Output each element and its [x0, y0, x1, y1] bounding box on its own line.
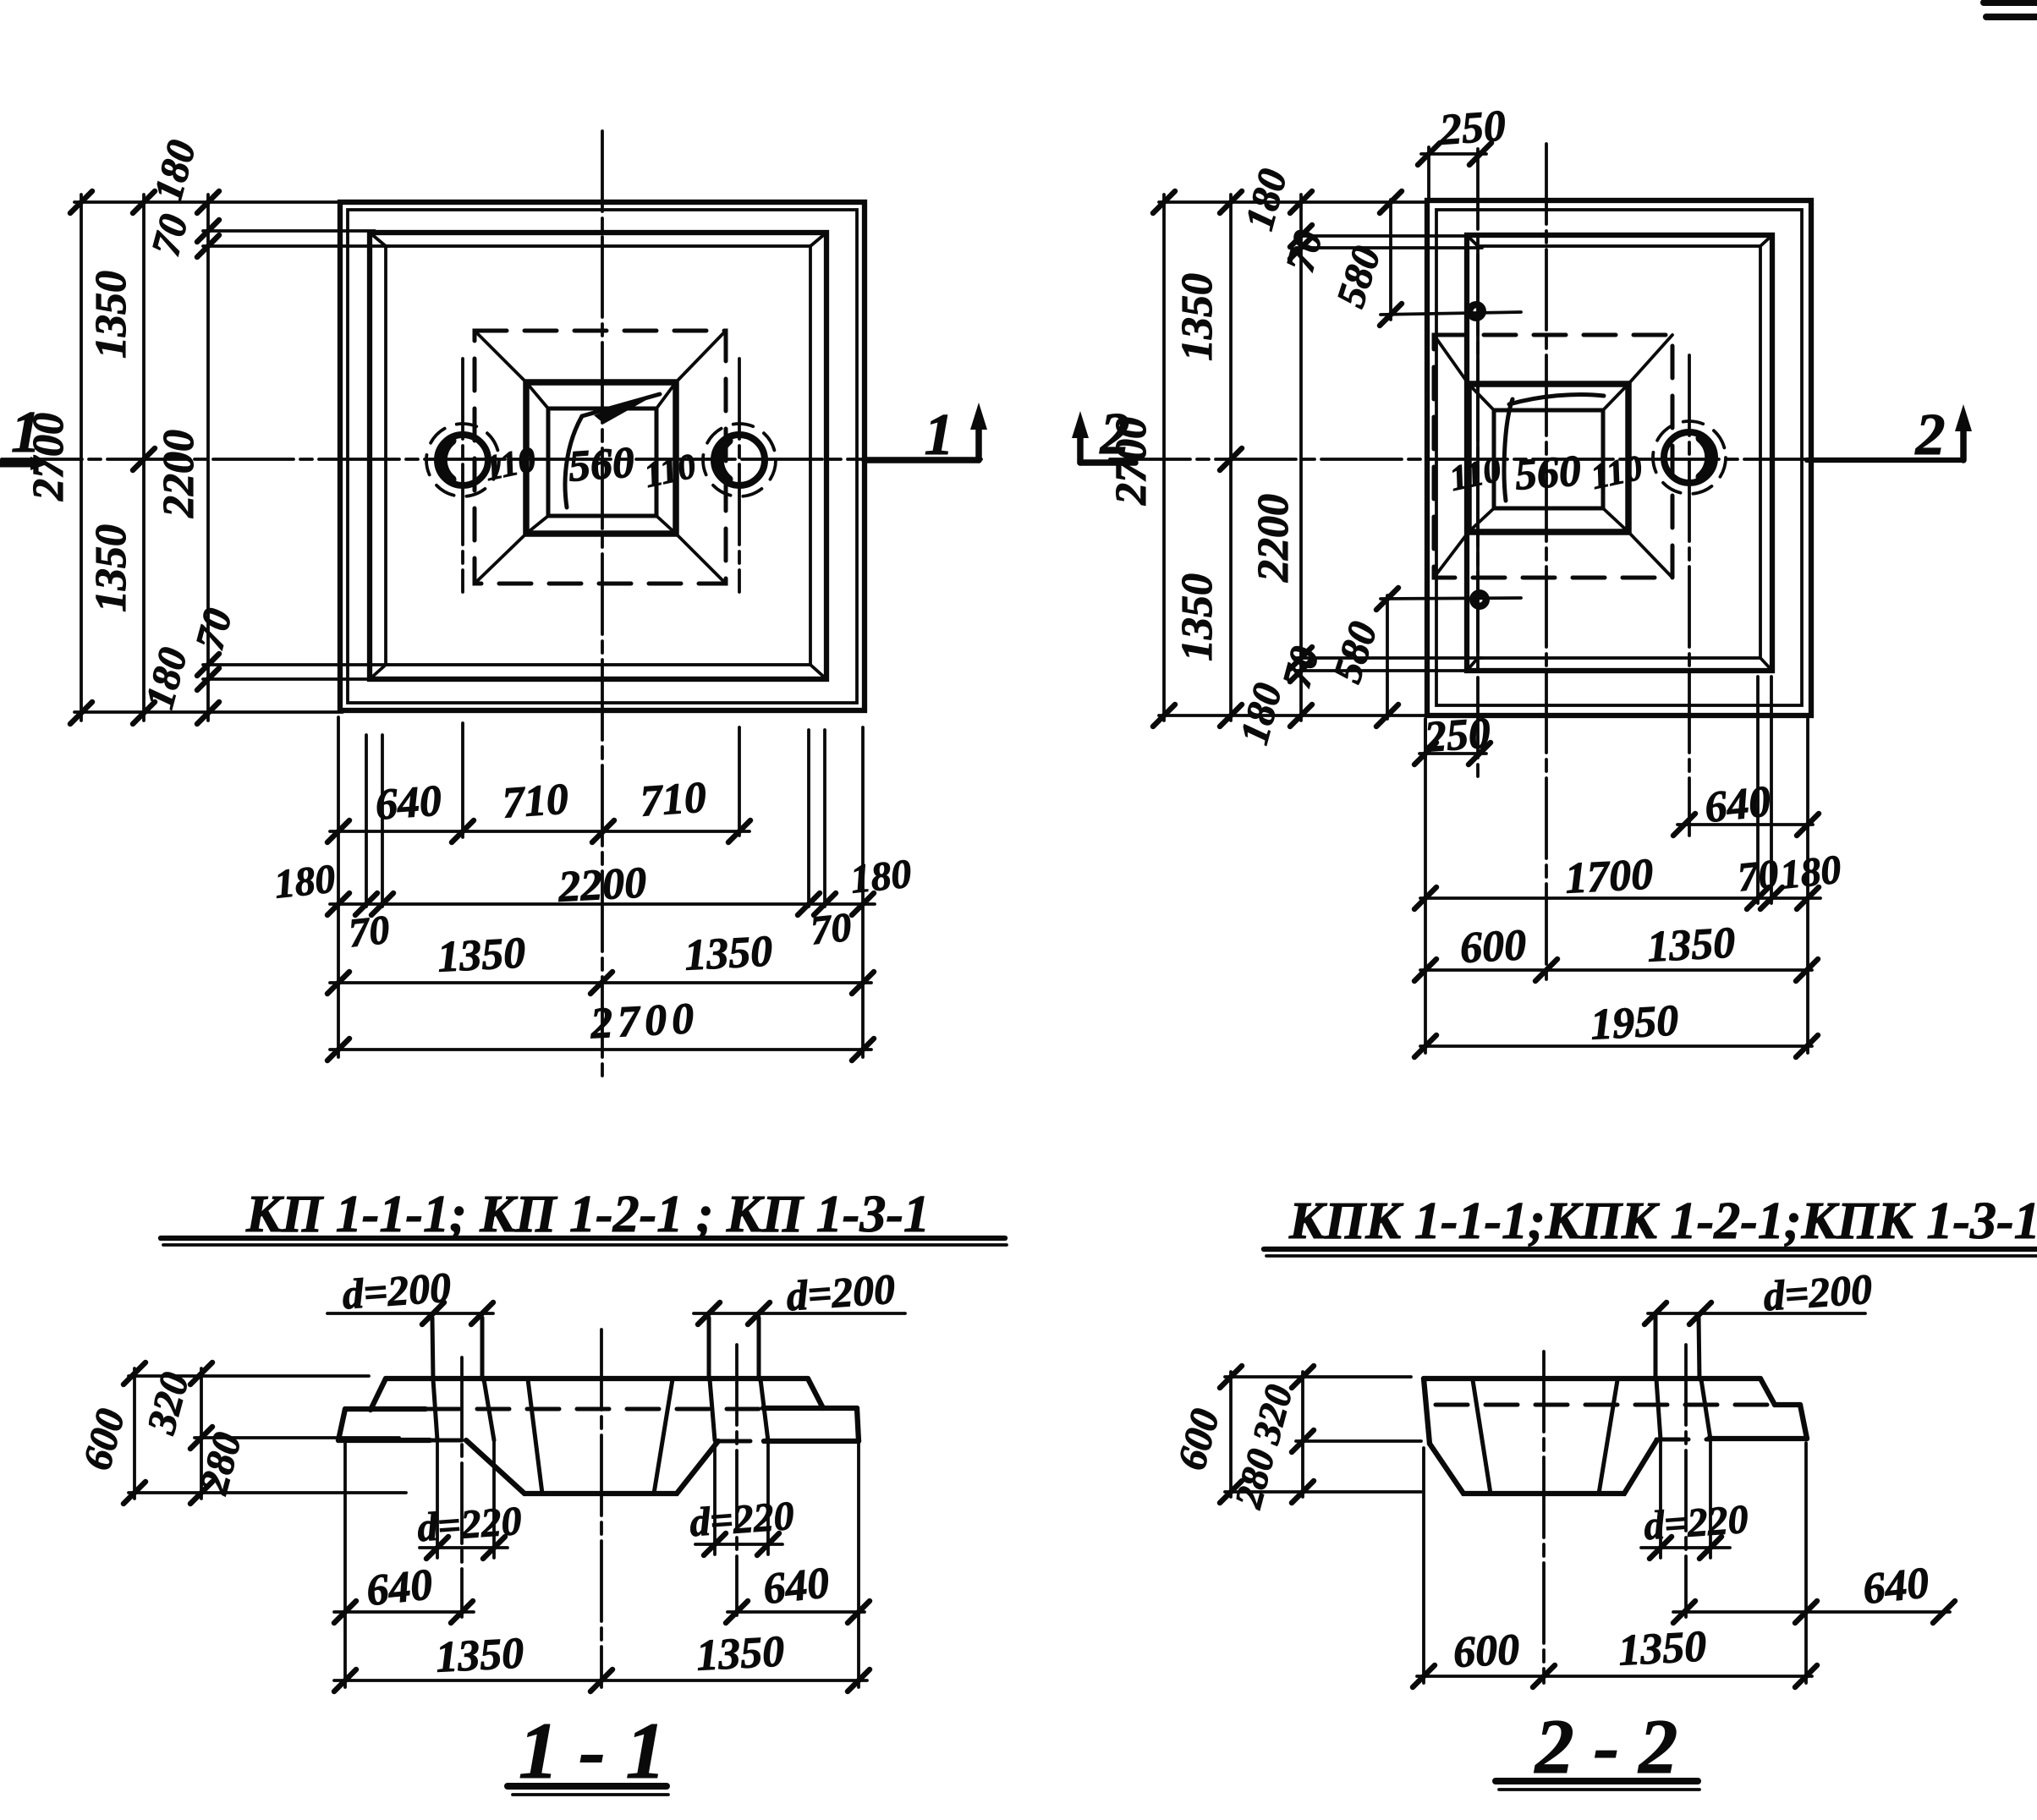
svg-text:580: 580 — [1325, 617, 1386, 688]
svg-text:640: 640 — [1703, 777, 1774, 832]
svg-text:1: 1 — [11, 400, 41, 465]
svg-text:640: 640 — [761, 1559, 832, 1614]
svg-text:1350: 1350 — [695, 1627, 786, 1680]
svg-text:180: 180 — [1237, 164, 1296, 234]
svg-text:2200: 2200 — [1249, 494, 1298, 583]
svg-text:1350: 1350 — [87, 271, 135, 359]
svg-text:600: 600 — [1459, 921, 1528, 973]
svg-text:110: 110 — [641, 447, 700, 496]
svg-text:1: 1 — [925, 403, 954, 468]
svg-text:320: 320 — [1244, 1380, 1300, 1449]
svg-text:1350: 1350 — [1646, 918, 1737, 971]
svg-text:70: 70 — [809, 905, 854, 954]
svg-text:2200: 2200 — [557, 858, 648, 911]
svg-text:1950: 1950 — [1590, 996, 1680, 1049]
svg-text:600: 600 — [1452, 1625, 1521, 1677]
svg-text:710: 710 — [639, 773, 708, 825]
svg-text:КПК 1-1-1;КПК 1-2-1;КПК 1-3-1: КПК 1-1-1;КПК 1-2-1;КПК 1-3-1 — [1288, 1192, 2037, 1250]
svg-text:110: 110 — [1588, 448, 1646, 497]
svg-text:710: 710 — [501, 775, 570, 827]
svg-text:2 - 2: 2 - 2 — [1534, 1703, 1678, 1790]
svg-text:70: 70 — [1274, 642, 1328, 693]
svg-text:180: 180 — [137, 643, 196, 713]
svg-text:КП 1-1-1; КП 1-2-1 ; КП 1-3-1: КП 1-1-1; КП 1-2-1 ; КП 1-3-1 — [245, 1186, 930, 1243]
svg-text:640: 640 — [374, 776, 443, 829]
svg-text:1700: 1700 — [1564, 850, 1655, 902]
svg-text:1350: 1350 — [1173, 273, 1222, 361]
svg-text:d=220: d=220 — [416, 1499, 524, 1550]
svg-text:70: 70 — [143, 210, 197, 260]
svg-text:1350: 1350 — [436, 929, 527, 981]
svg-text:1350: 1350 — [1617, 1622, 1708, 1675]
svg-text:600: 600 — [74, 1404, 134, 1474]
svg-text:d=200: d=200 — [1762, 1265, 1874, 1320]
svg-text:2: 2 — [1915, 403, 1946, 468]
svg-text:70: 70 — [1277, 226, 1331, 277]
svg-text:600: 600 — [1169, 1404, 1228, 1474]
svg-text:1350: 1350 — [87, 524, 135, 612]
svg-text:320: 320 — [139, 1368, 198, 1439]
svg-text:180: 180 — [1778, 847, 1843, 897]
svg-text:250: 250 — [1437, 101, 1507, 154]
svg-text:180: 180 — [1232, 678, 1291, 748]
svg-text:70: 70 — [347, 907, 392, 957]
svg-text:250: 250 — [1422, 709, 1492, 761]
svg-text:d=220: d=220 — [689, 1494, 796, 1545]
svg-text:2: 2 — [1100, 402, 1130, 467]
svg-text:d=200: d=200 — [785, 1265, 897, 1320]
svg-text:1350: 1350 — [1173, 573, 1222, 661]
svg-text:640: 640 — [1861, 1559, 1932, 1614]
svg-text:640: 640 — [365, 1560, 436, 1615]
svg-text:d=220: d=220 — [1643, 1497, 1750, 1549]
svg-text:180: 180 — [848, 851, 914, 902]
svg-text:70: 70 — [187, 604, 241, 655]
svg-text:1 - 1: 1 - 1 — [519, 1706, 666, 1795]
svg-text:180: 180 — [272, 856, 338, 907]
svg-text:2700: 2700 — [589, 995, 700, 1049]
svg-text:580: 580 — [1328, 241, 1390, 313]
svg-text:180: 180 — [145, 135, 205, 206]
svg-text:2200: 2200 — [155, 430, 203, 518]
svg-text:1350: 1350 — [435, 1629, 525, 1681]
svg-text:1350: 1350 — [684, 927, 774, 979]
svg-text:280: 280 — [1226, 1444, 1282, 1513]
